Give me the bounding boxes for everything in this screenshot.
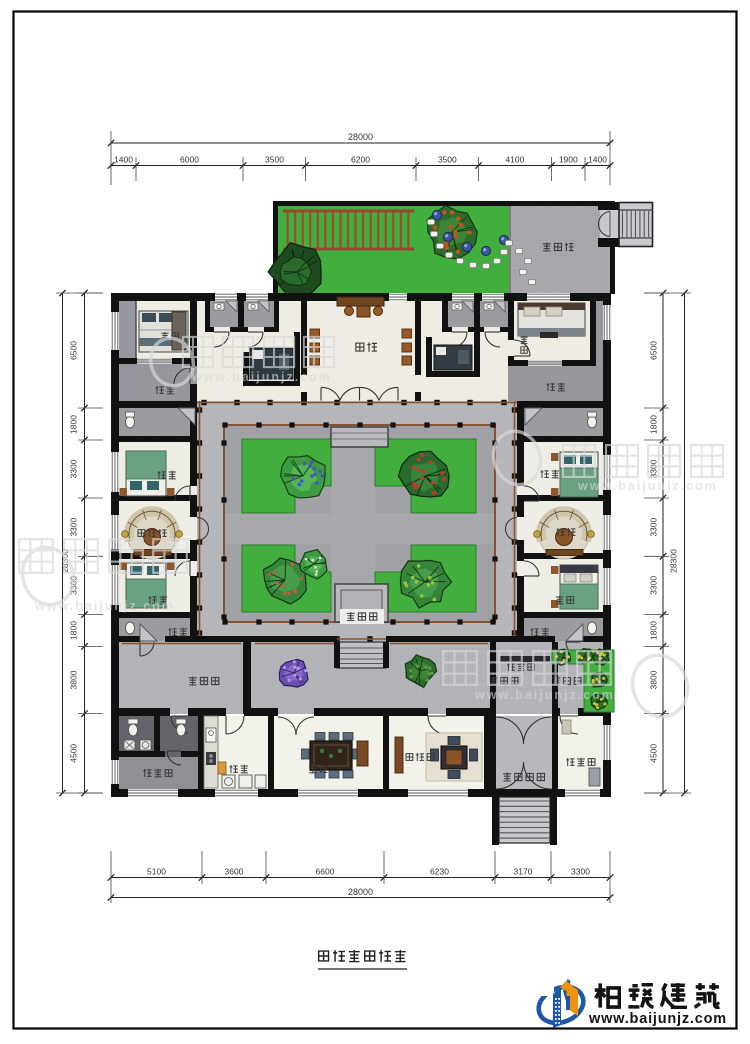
- svg-text:6500: 6500: [649, 341, 659, 360]
- svg-text:6230: 6230: [430, 867, 449, 877]
- svg-text:3500: 3500: [265, 155, 284, 165]
- svg-text:6000: 6000: [180, 155, 199, 165]
- svg-text:1900: 1900: [559, 155, 578, 165]
- svg-text:www.baijunjz.com: www.baijunjz.com: [577, 479, 718, 493]
- svg-text:www.baijunjz.com: www.baijunjz.com: [34, 599, 175, 613]
- svg-text:1800: 1800: [649, 415, 659, 434]
- svg-text:4500: 4500: [69, 744, 79, 763]
- svg-text:www.baijunjz.com: www.baijunjz.com: [191, 370, 332, 384]
- svg-text:5100: 5100: [147, 867, 166, 877]
- svg-text:1800: 1800: [69, 415, 79, 434]
- svg-text:3800: 3800: [649, 670, 659, 689]
- svg-text:3170: 3170: [514, 867, 533, 877]
- svg-text:3300: 3300: [649, 517, 659, 536]
- svg-text:6500: 6500: [69, 341, 79, 360]
- svg-text:3300: 3300: [649, 459, 659, 478]
- svg-text:4500: 4500: [649, 744, 659, 763]
- svg-text:1800: 1800: [69, 621, 79, 640]
- svg-text:28000: 28000: [348, 887, 373, 897]
- svg-text:1400: 1400: [114, 155, 133, 165]
- svg-text:3300: 3300: [571, 867, 590, 877]
- svg-text:3300: 3300: [649, 576, 659, 595]
- svg-text:1400: 1400: [588, 155, 607, 165]
- svg-text:3600: 3600: [225, 867, 244, 877]
- svg-text:3500: 3500: [438, 155, 457, 165]
- svg-text:28300: 28300: [669, 549, 679, 573]
- svg-text:www.baijunjz.com: www.baijunjz.com: [474, 688, 615, 702]
- svg-text:3300: 3300: [69, 459, 79, 478]
- svg-text:www.baijunjz.com: www.baijunjz.com: [588, 1011, 727, 1027]
- svg-text:6600: 6600: [316, 867, 335, 877]
- svg-text:28000: 28000: [348, 132, 373, 142]
- svg-text:1800: 1800: [649, 621, 659, 640]
- svg-text:4100: 4100: [505, 155, 524, 165]
- svg-text:3300: 3300: [69, 517, 79, 536]
- svg-text:6200: 6200: [351, 155, 370, 165]
- svg-text:3800: 3800: [69, 670, 79, 689]
